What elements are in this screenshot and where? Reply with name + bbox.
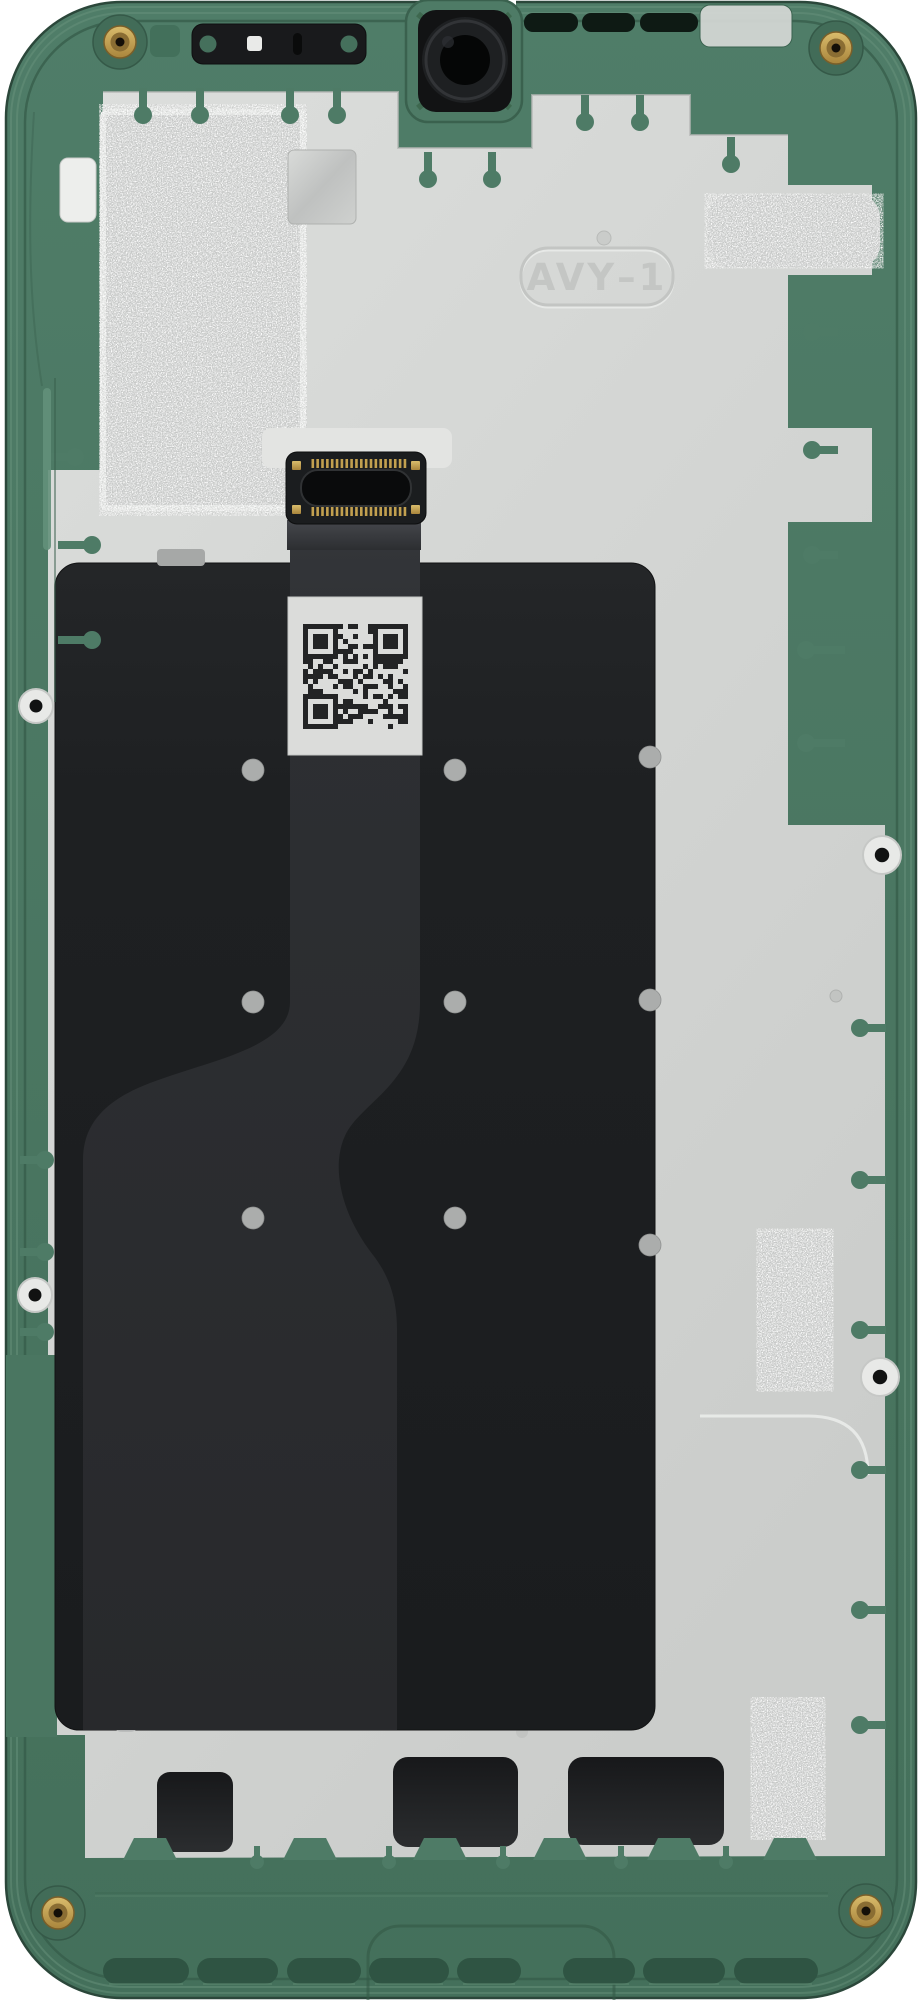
qr-module <box>303 724 308 729</box>
qr-module <box>318 654 323 659</box>
qr-module <box>338 719 343 724</box>
qr-module <box>313 674 318 679</box>
qr-module <box>373 709 378 714</box>
sensor-window <box>247 36 262 51</box>
qr-module <box>333 704 338 709</box>
connector-pin <box>375 507 378 516</box>
jigsaw-pin-head <box>66 448 84 466</box>
qr-module <box>398 714 403 719</box>
qr-module <box>388 704 393 709</box>
qr-module <box>303 654 308 659</box>
qr-module <box>393 654 398 659</box>
jigsaw-pin-head <box>851 1321 869 1339</box>
connector-pin <box>336 459 339 468</box>
jigsaw-pin-head <box>328 106 346 124</box>
qr-module <box>388 644 393 649</box>
screw-hole <box>29 1289 42 1302</box>
qr-module <box>323 709 328 714</box>
jigsaw-pin-head <box>797 734 815 752</box>
qr-module <box>353 659 358 664</box>
qr-module <box>333 644 338 649</box>
side-latch-tab <box>60 158 96 222</box>
connector-pin <box>355 507 358 516</box>
qr-module <box>333 629 338 634</box>
bottom-pin-head <box>719 1855 733 1869</box>
qr-module <box>388 694 393 699</box>
qr-module <box>393 624 398 629</box>
qr-module <box>393 659 398 664</box>
jigsaw-pin-head <box>36 1151 54 1169</box>
qr-module <box>373 624 378 629</box>
qr-module <box>368 624 373 629</box>
panel-boss-dot <box>639 1234 661 1256</box>
qr-module <box>333 649 338 654</box>
qr-module <box>303 649 308 654</box>
qr-module <box>308 659 313 664</box>
qr-module <box>313 689 318 694</box>
qr-module <box>383 679 388 684</box>
jigsaw-pin-head <box>851 1019 869 1037</box>
qr-module <box>303 699 308 704</box>
vent-slot <box>563 1958 635 1984</box>
qr-module <box>388 674 393 679</box>
qr-module <box>403 714 408 719</box>
qr-module <box>323 659 328 664</box>
qr-module <box>348 684 353 689</box>
front-camera-assembly <box>406 0 522 122</box>
qr-module <box>343 719 348 724</box>
qr-module <box>348 659 353 664</box>
qr-module <box>403 684 408 689</box>
qr-module <box>373 684 378 689</box>
sensor-hole-left <box>200 36 217 53</box>
connector-pin <box>375 459 378 468</box>
panel-boss-dot <box>444 1207 466 1229</box>
board-connector <box>286 452 426 524</box>
qr-module <box>318 664 323 669</box>
qr-module <box>313 634 318 639</box>
connector-pin <box>321 459 324 468</box>
qr-module <box>368 709 373 714</box>
qr-module <box>383 704 388 709</box>
panel-boss-dot <box>444 759 466 781</box>
plate-pilot-hole <box>597 231 611 245</box>
jigsaw-pin-head <box>483 170 501 188</box>
screw-bore <box>862 1907 871 1916</box>
connector-pin <box>345 507 348 516</box>
panel-boss-dot <box>242 1207 264 1229</box>
connector-pin <box>379 507 382 516</box>
panel-boss-dot <box>639 746 661 768</box>
qr-module <box>363 644 368 649</box>
qr-module <box>318 644 323 649</box>
connector-pin <box>312 459 315 468</box>
qr-module <box>388 664 393 669</box>
qr-module <box>373 659 378 664</box>
qr-module <box>388 634 393 639</box>
qr-module <box>353 704 358 709</box>
qr-module <box>353 624 358 629</box>
qr-module <box>338 704 343 709</box>
connector-pin <box>341 507 344 516</box>
qr-module <box>328 694 333 699</box>
qr-module <box>398 694 403 699</box>
jigsaw-pin-head <box>576 113 594 131</box>
qr-module <box>333 719 338 724</box>
qr-module <box>368 629 373 634</box>
sensor-side-tab <box>150 25 180 57</box>
qr-module <box>373 664 378 669</box>
qr-module <box>348 624 353 629</box>
qr-module <box>303 634 308 639</box>
connector-pin <box>312 507 315 516</box>
qr-module <box>403 639 408 644</box>
jigsaw-pin-head <box>851 1461 869 1479</box>
qr-module <box>338 624 343 629</box>
qr-module <box>383 639 388 644</box>
speaker-slot <box>524 13 578 32</box>
jigsaw-pin-head <box>83 536 101 554</box>
qr-module <box>373 634 378 639</box>
qr-module <box>318 669 323 674</box>
qr-module <box>368 719 373 724</box>
connector-pin <box>399 507 402 516</box>
qr-module <box>378 674 383 679</box>
panel-boss-dot <box>444 991 466 1013</box>
connector-pin <box>384 507 387 516</box>
connector-pin <box>404 459 407 468</box>
qr-module <box>323 669 328 674</box>
qr-module <box>398 654 403 659</box>
screw-hole <box>30 700 43 713</box>
qr-module <box>318 724 323 729</box>
qr-module <box>343 684 348 689</box>
bottom-pin-head <box>382 1855 396 1869</box>
qr-module <box>403 669 408 674</box>
qr-module <box>333 624 338 629</box>
connector-pin <box>360 459 363 468</box>
port-cutout <box>157 1772 233 1852</box>
qr-module <box>338 679 343 684</box>
qr-module <box>403 629 408 634</box>
qr-module <box>403 709 408 714</box>
connector-pin <box>370 459 373 468</box>
qr-module <box>303 659 308 664</box>
bottom-pin-head <box>496 1855 510 1869</box>
qr-module <box>303 674 308 679</box>
connector-pin <box>399 459 402 468</box>
qr-module <box>383 644 388 649</box>
avy-stamp-label: AVY–1 <box>527 256 668 299</box>
qr-module <box>323 639 328 644</box>
panel-boss-dot <box>639 989 661 1011</box>
jigsaw-pin-head <box>36 1323 54 1341</box>
midframe-illustration: AVY–1 <box>0 0 922 2000</box>
qr-module <box>393 639 398 644</box>
qr-module <box>303 669 308 674</box>
connector-pin <box>404 507 407 516</box>
connector-pin <box>365 459 368 468</box>
qr-module <box>368 644 373 649</box>
qr-module <box>403 649 408 654</box>
jigsaw-pin-head <box>851 1601 869 1619</box>
qr-module <box>378 654 383 659</box>
jigsaw-pin-head <box>631 113 649 131</box>
qr-module <box>323 704 328 709</box>
qr-module <box>343 699 348 704</box>
qr-module <box>308 684 313 689</box>
qr-module <box>333 714 338 719</box>
qr-module <box>398 689 403 694</box>
qr-module <box>358 669 363 674</box>
qr-module <box>328 669 333 674</box>
qr-module <box>383 664 388 669</box>
qr-module <box>403 634 408 639</box>
connector-socket <box>301 470 411 506</box>
qr-module <box>303 629 308 634</box>
qr-module <box>313 694 318 699</box>
qr-module <box>323 654 328 659</box>
qr-module <box>403 689 408 694</box>
qr-module <box>303 714 308 719</box>
qr-module <box>343 704 348 709</box>
qr-module <box>403 719 408 724</box>
qr-module <box>343 669 348 674</box>
side-button-slit <box>43 388 51 550</box>
screw-bore <box>54 1909 63 1918</box>
qr-module <box>353 674 358 679</box>
qr-module <box>348 649 353 654</box>
qr-module <box>303 624 308 629</box>
qr-module <box>383 699 388 704</box>
qr-module <box>393 644 398 649</box>
qr-module <box>368 684 373 689</box>
qr-module <box>398 719 403 724</box>
qr-module <box>403 694 408 699</box>
qr-module <box>403 624 408 629</box>
qr-module <box>348 679 353 684</box>
jigsaw-pin-head <box>803 323 821 341</box>
qr-module <box>383 659 388 664</box>
qr-module <box>303 719 308 724</box>
qr-module <box>343 659 348 664</box>
connector-pin <box>394 507 397 516</box>
qr-module <box>393 664 398 669</box>
foil-strip-right-mid <box>758 1232 832 1388</box>
qr-module <box>348 714 353 719</box>
connector-pin <box>316 459 319 468</box>
vent-slot <box>457 1958 521 1984</box>
qr-module <box>323 644 328 649</box>
qr-module <box>378 659 383 664</box>
qr-module <box>388 679 393 684</box>
port-cutout <box>568 1757 724 1845</box>
sensor-hole-right <box>341 36 358 53</box>
foil-patch-top-right <box>708 195 880 267</box>
qr-module <box>308 724 313 729</box>
qr-module <box>383 634 388 639</box>
jigsaw-pin-head <box>191 106 209 124</box>
speaker-slot <box>640 13 698 32</box>
qr-module <box>318 624 323 629</box>
qr-sticker <box>288 597 422 755</box>
connector-pin <box>355 459 358 468</box>
qr-module <box>328 624 333 629</box>
speaker-slot <box>582 13 635 32</box>
connector-pin <box>389 507 392 516</box>
qr-module <box>313 679 318 684</box>
connector-pin <box>341 459 344 468</box>
qr-module <box>363 674 368 679</box>
qr-module <box>398 679 403 684</box>
qr-module <box>303 639 308 644</box>
qr-module <box>343 709 348 714</box>
qr-module <box>323 634 328 639</box>
qr-module <box>363 654 368 659</box>
qr-module <box>313 704 318 709</box>
phone-midframe-photo: AVY–1 <box>0 0 922 2000</box>
qr-module <box>373 649 378 654</box>
screw-bore <box>116 38 125 47</box>
bottom-pin-head <box>614 1855 628 1869</box>
metal-shield-square <box>288 150 356 224</box>
qr-module <box>338 714 343 719</box>
qr-module <box>388 714 393 719</box>
connector-pin <box>394 459 397 468</box>
qr-module <box>308 664 313 669</box>
vent-slot <box>287 1958 361 1984</box>
qr-module <box>343 679 348 684</box>
qr-module <box>333 709 338 714</box>
connector-pin <box>384 459 387 468</box>
qr-module <box>388 639 393 644</box>
avy-stamp: AVY–1 <box>521 248 673 307</box>
qr-module <box>388 624 393 629</box>
qr-module <box>318 704 323 709</box>
frame-left-band <box>6 1355 57 1737</box>
qr-module <box>333 634 338 639</box>
qr-module <box>313 709 318 714</box>
qr-module <box>318 674 323 679</box>
qr-module <box>313 714 318 719</box>
qr-module <box>318 709 323 714</box>
connector-pin <box>379 459 382 468</box>
qr-module <box>378 694 383 699</box>
qr-module <box>353 714 358 719</box>
qr-module <box>323 714 328 719</box>
qr-module <box>308 689 313 694</box>
qr-module <box>313 644 318 649</box>
connector-pin <box>350 507 353 516</box>
qr-module <box>363 694 368 699</box>
qr-module <box>303 694 308 699</box>
screw-bore <box>832 44 841 53</box>
vent-slot <box>734 1958 818 1984</box>
qr-module <box>373 654 378 659</box>
panel-boss-dot <box>242 991 264 1013</box>
jigsaw-pin-head <box>797 641 815 659</box>
qr-module <box>348 704 353 709</box>
connector-pin <box>370 507 373 516</box>
connector-pin <box>316 507 319 516</box>
qr-module <box>328 724 333 729</box>
qr-module <box>333 684 338 689</box>
qr-module <box>348 699 353 704</box>
top-bracket-window <box>700 5 792 47</box>
jigsaw-pin-head <box>851 1716 869 1734</box>
qr-module <box>323 624 328 629</box>
qr-module <box>308 694 313 699</box>
jigsaw-pin-head <box>803 441 821 459</box>
qr-module <box>343 649 348 654</box>
connector-pin <box>331 507 334 516</box>
qr-module <box>303 709 308 714</box>
vent-slot <box>103 1958 189 1984</box>
qr-module <box>358 704 363 709</box>
qr-module <box>398 659 403 664</box>
qr-module <box>388 684 393 689</box>
qr-module <box>363 689 368 694</box>
qr-module <box>303 644 308 649</box>
qr-module <box>373 694 378 699</box>
connector-pin <box>360 507 363 516</box>
qr-module <box>358 679 363 684</box>
qr-module <box>403 704 408 709</box>
jigsaw-pin-head <box>134 106 152 124</box>
vent-slot <box>369 1958 449 1984</box>
connector-pin <box>321 507 324 516</box>
qr-module <box>403 654 408 659</box>
lens-glint <box>442 36 454 48</box>
qr-module <box>353 634 358 639</box>
qr-module <box>313 654 318 659</box>
jigsaw-pin-head <box>281 106 299 124</box>
qr-module <box>313 624 318 629</box>
qr-module <box>333 724 338 729</box>
qr-module <box>358 709 363 714</box>
qr-module <box>383 654 388 659</box>
qr-module <box>363 704 368 709</box>
qr-module <box>353 644 358 649</box>
qr-module <box>388 654 393 659</box>
qr-module <box>383 714 388 719</box>
panel-boss-dot <box>242 759 264 781</box>
qr-module <box>333 674 338 679</box>
qr-module <box>368 674 373 679</box>
qr-module <box>373 644 378 649</box>
qr-module <box>318 714 323 719</box>
connector-pin <box>326 507 329 516</box>
qr-module <box>398 624 403 629</box>
qr-module <box>333 639 338 644</box>
qr-module <box>388 659 393 664</box>
qr-module <box>328 674 333 679</box>
connector-pin <box>331 459 334 468</box>
qr-module <box>393 634 398 639</box>
qr-module <box>318 634 323 639</box>
jigsaw-pin-head <box>83 631 101 649</box>
qr-module <box>318 694 323 699</box>
qr-module <box>403 644 408 649</box>
connector-pin <box>336 507 339 516</box>
qr-module <box>333 654 338 659</box>
plate-pilot-hole <box>830 990 842 1002</box>
qr-module <box>378 704 383 709</box>
screw-hole <box>875 848 889 862</box>
qr-module <box>333 664 338 669</box>
qr-module <box>313 639 318 644</box>
qr-module <box>338 634 343 639</box>
